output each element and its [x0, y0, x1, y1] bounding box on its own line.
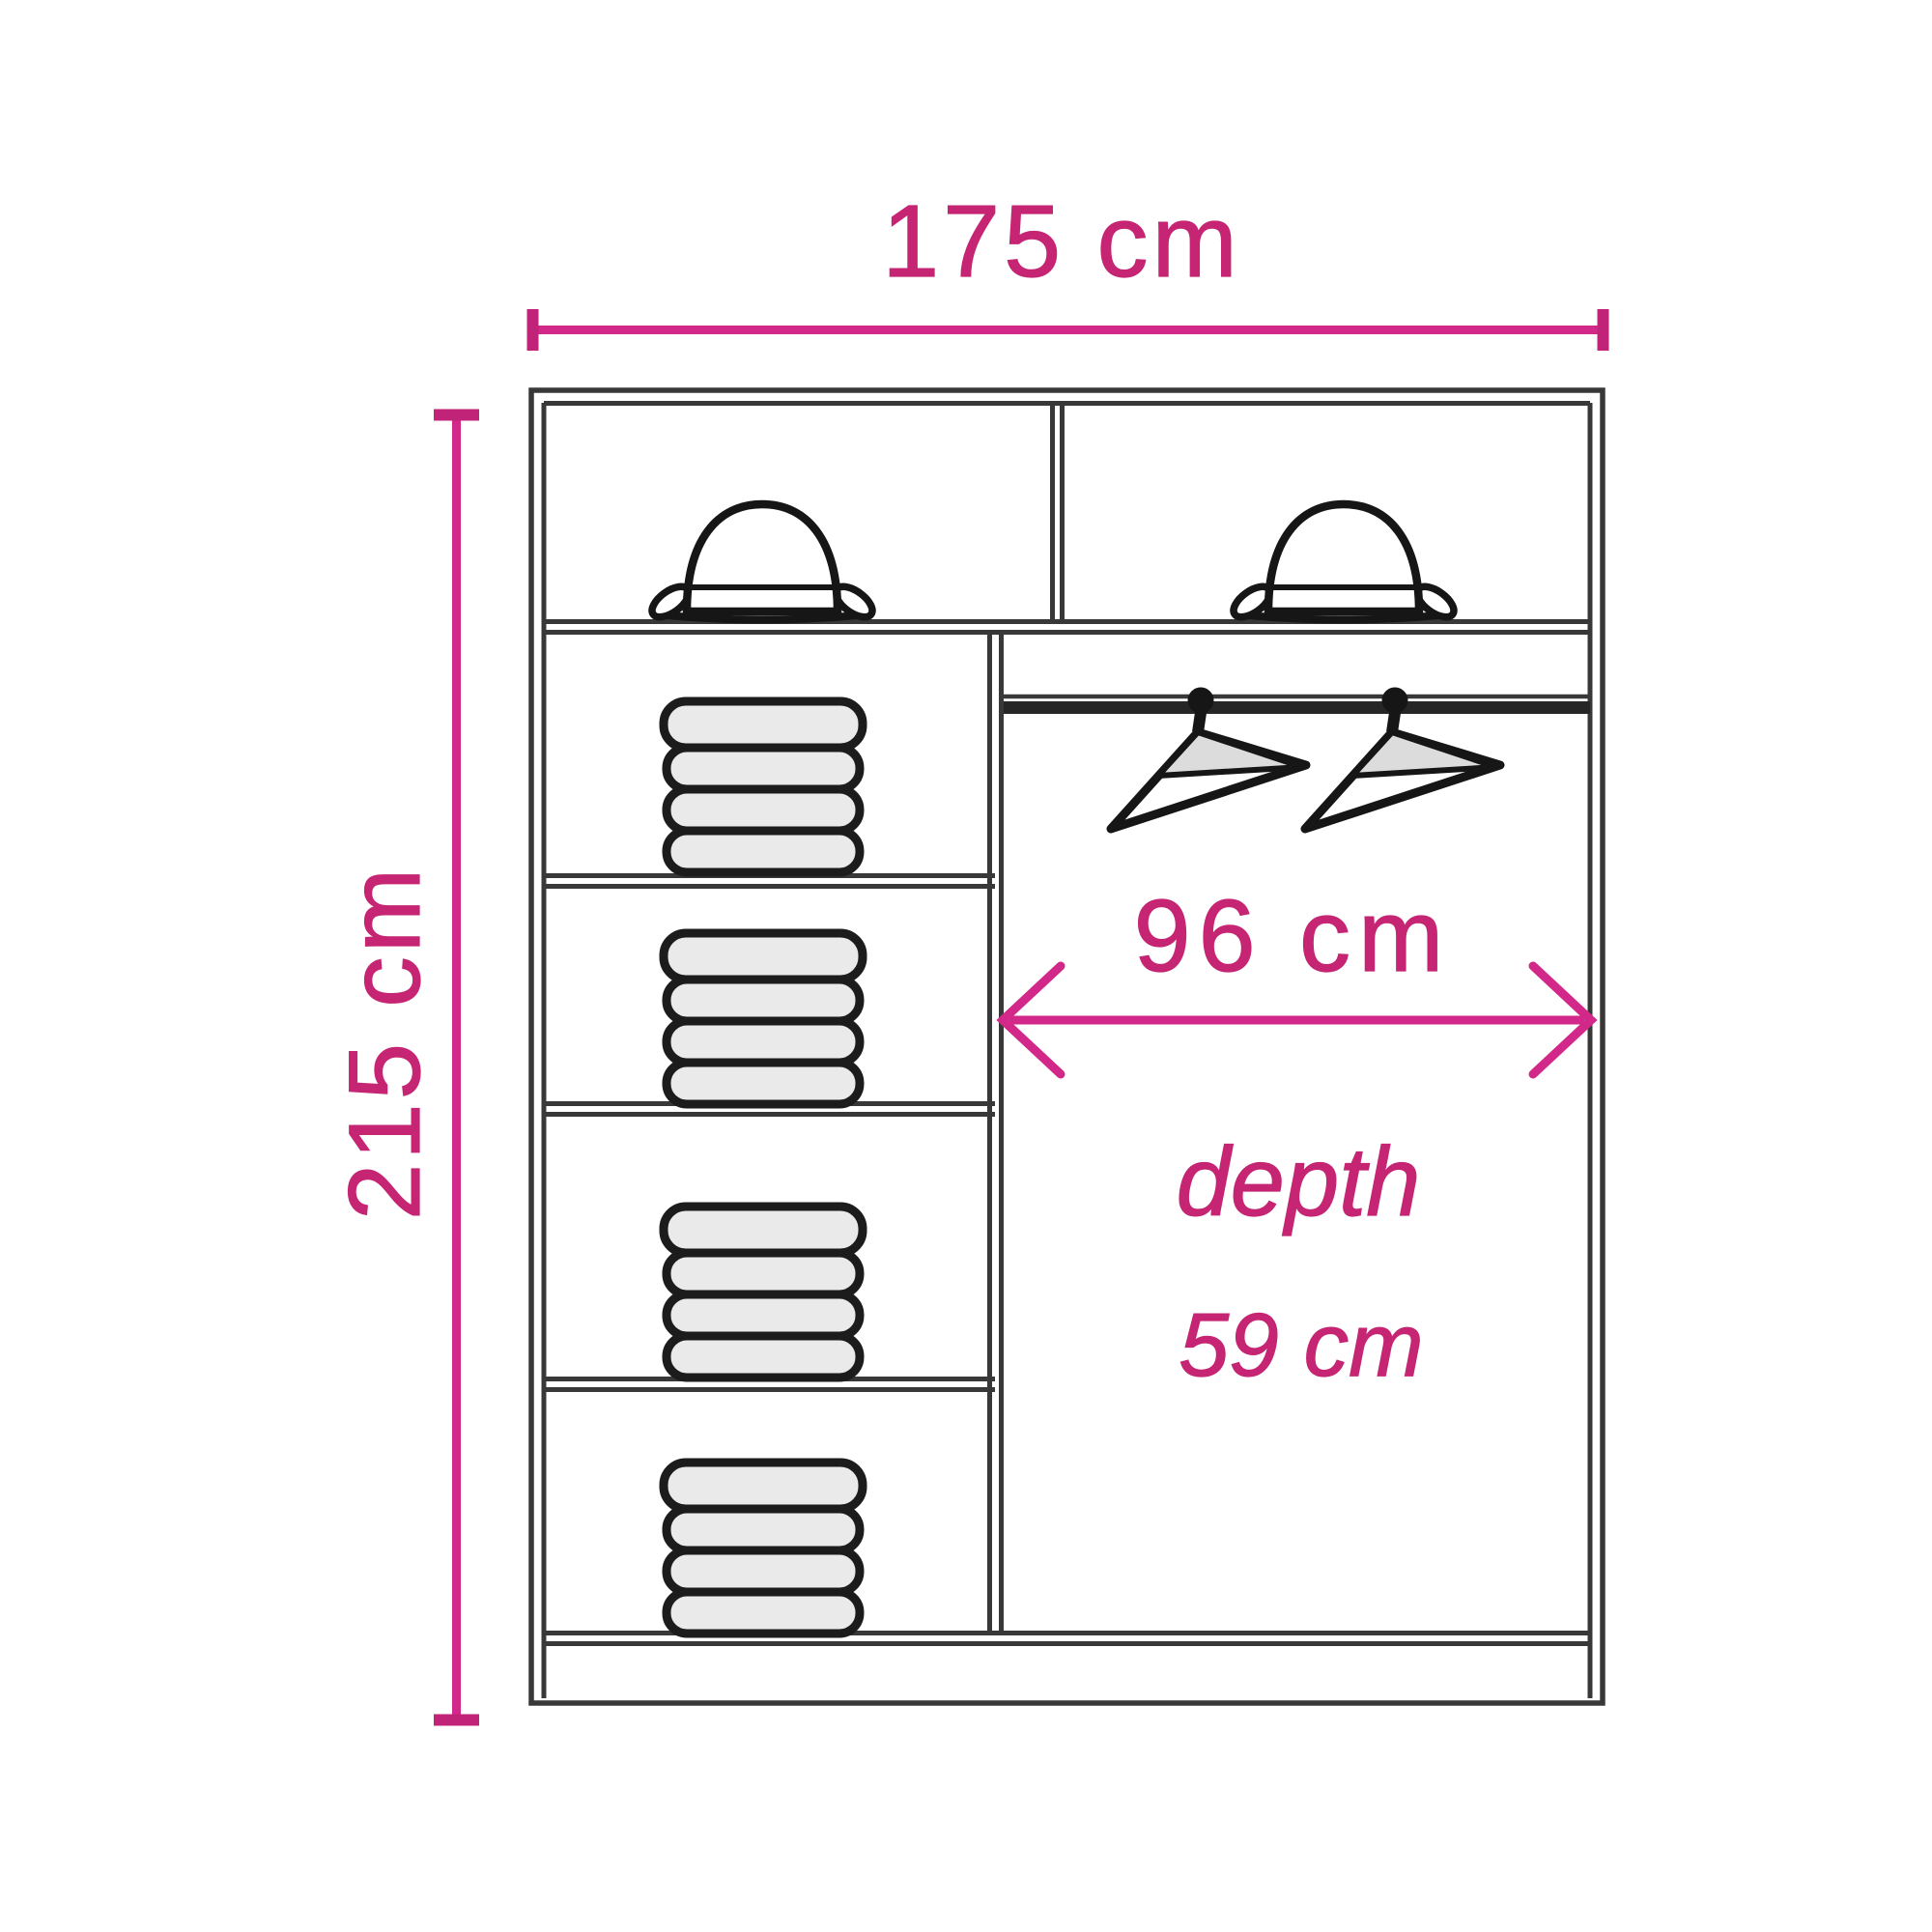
svg-text:215 cm: 215 cm — [328, 865, 441, 1220]
svg-text:depth: depth — [1177, 1128, 1421, 1236]
svg-text:96 cm: 96 cm — [1134, 879, 1452, 993]
svg-text:175 cm: 175 cm — [882, 185, 1241, 298]
svg-text:59 cm: 59 cm — [1179, 1294, 1423, 1395]
